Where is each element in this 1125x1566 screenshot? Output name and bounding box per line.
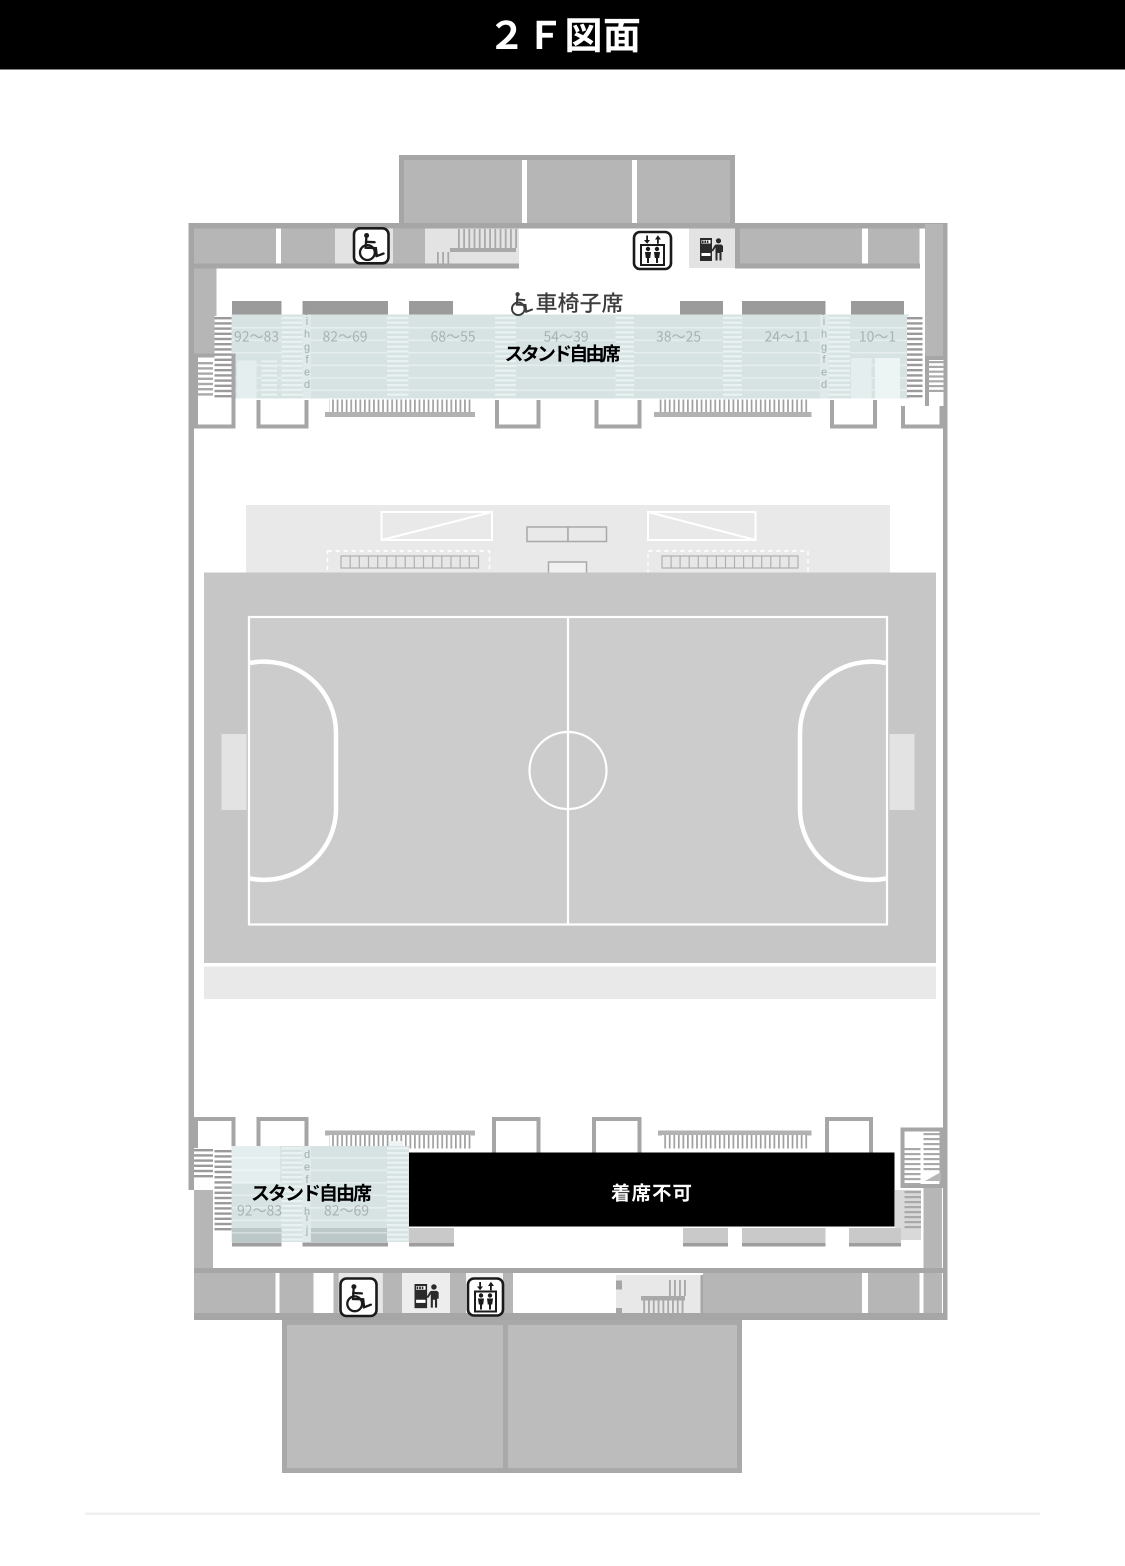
svg-text:h: h [304, 329, 310, 341]
svg-text:j: j [305, 304, 308, 316]
svg-text:g: g [304, 341, 310, 353]
svg-text:e: e [304, 367, 310, 379]
svg-text:e: e [821, 367, 827, 379]
svg-text:h: h [821, 329, 827, 341]
svg-text:j: j [822, 304, 825, 316]
svg-text:j: j [305, 1225, 308, 1237]
svg-text:e: e [304, 1162, 310, 1174]
svg-text:d: d [821, 379, 827, 391]
svg-text:d: d [304, 1149, 310, 1161]
svg-text:i: i [823, 316, 825, 328]
svg-text:h: h [304, 1206, 310, 1218]
svg-text:d: d [304, 379, 310, 391]
svg-text:i: i [306, 316, 308, 328]
svg-text:g: g [821, 341, 827, 353]
